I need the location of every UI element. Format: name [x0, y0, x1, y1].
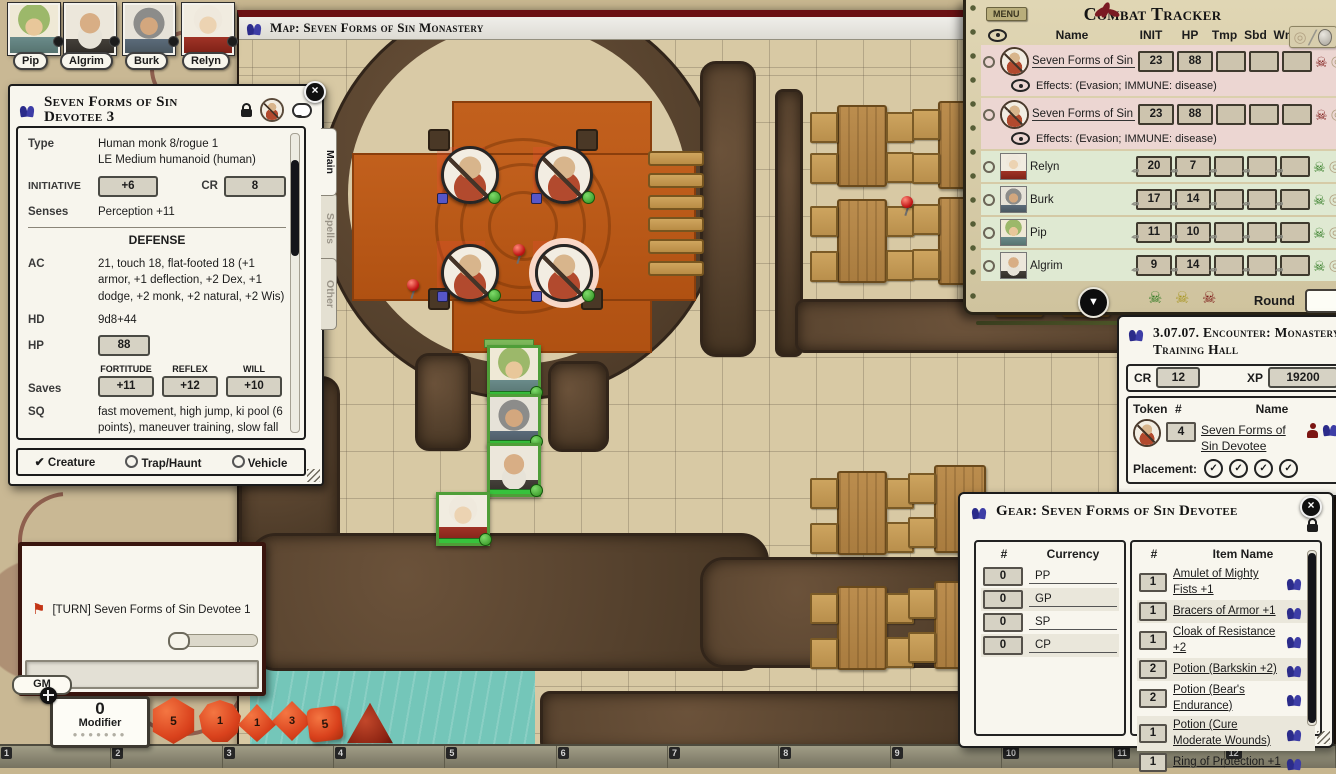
tracker-row-devotee-1[interactable]: Seven Forms of Sin Devote 23 88 ☠ ◎ ╱ Ef…: [981, 45, 1336, 96]
targeting-reticle-icon[interactable]: ◎: [1329, 258, 1336, 273]
bench: [810, 251, 838, 282]
modifier-label: Modifier: [53, 718, 147, 729]
item-link[interactable]: Potion (Bear's Endurance): [1173, 683, 1281, 714]
portrait-art: [10, 5, 58, 53]
portrait-label: Pip: [13, 52, 48, 70]
entry-type-selector: ✔ Creature Trap/Haunt Vehicle: [16, 448, 306, 476]
item-sheet-icon[interactable]: [1287, 576, 1303, 590]
resize-handle[interactable]: [307, 469, 320, 482]
bench: [810, 593, 838, 624]
hotkey-slot[interactable]: 3: [223, 746, 334, 768]
rack: [648, 239, 704, 254]
encounter-token-panel: Token # Name 4 Seven Forms of Sin Devote…: [1126, 396, 1336, 484]
field-label: Saves: [28, 381, 90, 397]
bench: [912, 153, 940, 184]
type-value: Human monk 8/rogue 1 LE Medium humanoid …: [98, 136, 286, 169]
col-qty: #: [981, 547, 1027, 561]
item-sheet-icon[interactable]: [1287, 692, 1303, 706]
hotkey-number: 2: [112, 747, 123, 759]
bench: [810, 153, 838, 184]
option-trap-haunt[interactable]: Trap/Haunt: [125, 455, 201, 470]
drag-grip[interactable]: [983, 109, 995, 121]
bench: [908, 517, 936, 548]
cr-box[interactable]: 12: [1156, 367, 1200, 388]
tmp-box[interactable]: [1216, 104, 1246, 125]
item-qty-box[interactable]: 2: [1139, 689, 1167, 708]
targeting-reticle-icon[interactable]: ◎: [1329, 225, 1336, 240]
tracker-row-algrim[interactable]: Algrim 9 14 ☠ ◎ ╱: [981, 250, 1336, 281]
portrait-pip[interactable]: [8, 3, 60, 55]
hotkey-slot[interactable]: 8: [779, 746, 890, 768]
combatant-name[interactable]: Pip: [1030, 227, 1133, 239]
bench: [908, 632, 936, 663]
option-creature[interactable]: ✔ Creature: [35, 455, 96, 469]
gear-title: Gear: Seven Forms of Sin Devotee: [996, 503, 1238, 520]
devotee-token-1[interactable]: [441, 146, 499, 204]
bench: [908, 588, 936, 619]
visibility-eye-icon[interactable]: [1011, 79, 1030, 92]
tracker-row-burk[interactable]: Burk 17 14 ☠ ◎ ╱: [981, 184, 1336, 215]
col-qty: #: [1175, 402, 1205, 416]
item-sheet-icon[interactable]: [1287, 663, 1303, 677]
chat-window: ⚑ [TURN] Seven Forms of Sin Devotee 1: [18, 542, 266, 696]
item-row: 1 Potion (Cure Moderate Wounds): [1137, 716, 1315, 751]
placement-check-icon[interactable]: ✓: [1254, 459, 1273, 478]
currency-amount-box[interactable]: 0: [983, 590, 1023, 609]
item-link[interactable]: Amulet of Mighty Fists +1: [1173, 567, 1281, 598]
item-sheet-icon[interactable]: [1287, 634, 1303, 648]
visibility-eye-icon[interactable]: [988, 29, 1007, 42]
effect-chip: [437, 193, 448, 204]
health-filter-red-icon[interactable]: ☠: [1202, 291, 1216, 307]
wnd-box[interactable]: [1280, 156, 1310, 177]
lock-icon[interactable]: [1307, 524, 1318, 532]
effects-line: Effects: (Evasion; IMMUNE: disease): [1011, 132, 1336, 145]
status-skull-icon[interactable]: ☠: [1315, 55, 1328, 69]
modifier-target-icon[interactable]: [40, 687, 57, 704]
defense-shield-icon: [1318, 29, 1332, 46]
window-icon: [1129, 327, 1145, 341]
table: [837, 105, 887, 187]
currency-panel: # Currency 0 PP 0 GP 0 SP 0 CP: [974, 540, 1126, 736]
token-portrait[interactable]: [1000, 153, 1027, 180]
will-box[interactable]: +10: [226, 376, 282, 397]
portrait-handle[interactable]: [227, 36, 238, 47]
placement-check-icon[interactable]: ✓: [1204, 459, 1223, 478]
hotkey-number: 6: [558, 747, 569, 759]
npc-sheet-window: Main Spells Other × Seven Forms of Sin D…: [8, 84, 324, 486]
placement-check-icon[interactable]: ✓: [1229, 459, 1248, 478]
cr-label: CR: [1134, 371, 1151, 385]
scrollbar-thumb[interactable]: [291, 160, 299, 256]
scrollbar-thumb[interactable]: [1308, 553, 1316, 723]
close-icon[interactable]: ×: [1300, 496, 1322, 518]
wnd-box[interactable]: [1280, 255, 1310, 276]
combatant-name[interactable]: Algrim: [1030, 260, 1133, 272]
effect-chip: [437, 291, 448, 302]
item-link[interactable]: Cloak of Resistance +2: [1173, 625, 1281, 656]
token-portrait[interactable]: [260, 98, 284, 122]
hotkey-slot[interactable]: 2: [111, 746, 222, 768]
map-pin[interactable]: [406, 279, 420, 300]
npc-link[interactable]: Seven Forms of Sin Devotee: [1201, 422, 1302, 454]
bench: [810, 478, 838, 509]
token-portrait[interactable]: [1000, 219, 1027, 246]
rack: [648, 217, 704, 232]
tracker-tools[interactable]: ◎ ╱: [1289, 26, 1336, 48]
portrait-art: [184, 5, 232, 53]
pc-token-pip[interactable]: [487, 345, 541, 399]
item-row: 1 Bracers of Armor +1: [1137, 600, 1315, 623]
effect-chip: [531, 193, 542, 204]
sheet-content: Type Human monk 8/rogue 1 LE Medium huma…: [16, 126, 306, 440]
col-currency: Currency: [1027, 547, 1119, 561]
currency-code[interactable]: CP: [1029, 639, 1117, 653]
item-sheet-icon[interactable]: [1287, 727, 1303, 741]
wnd-box[interactable]: [1280, 189, 1310, 210]
bench: [908, 473, 936, 504]
effects-line: Effects: (Evasion; IMMUNE: disease): [1011, 79, 1336, 92]
health-dot: [582, 191, 595, 204]
wnd-box[interactable]: [1282, 51, 1312, 72]
bench: [886, 250, 914, 281]
ac-value: 21, touch 18, flat-footed 18 (+1 armor, …: [98, 256, 286, 305]
hotkey-number: 3: [224, 747, 235, 759]
placement-label: Placement:: [1133, 462, 1197, 476]
hotkey-slot[interactable]: 6: [557, 746, 668, 768]
drag-grip[interactable]: [983, 260, 995, 272]
combatant-name[interactable]: Seven Forms of Sin Devote: [1032, 55, 1135, 68]
senses-value: Perception +11: [98, 204, 286, 220]
item-qty-box[interactable]: 1: [1139, 602, 1167, 621]
devotee-token-3[interactable]: [441, 244, 499, 302]
combatant-name[interactable]: Relyn: [1030, 161, 1133, 173]
check-icon: ✔: [35, 455, 45, 469]
bench: [912, 109, 940, 140]
modifier-value: 0: [53, 700, 147, 718]
item-row: 1 Cloak of Resistance +2: [1137, 623, 1315, 658]
cr-label: CR: [201, 178, 218, 194]
scrollbar[interactable]: [1307, 550, 1317, 726]
hotkey-slot[interactable]: 5: [445, 746, 556, 768]
token-portrait[interactable]: [1133, 419, 1161, 447]
portrait-handle[interactable]: [53, 36, 64, 47]
targeting-reticle-icon[interactable]: ◎: [1329, 159, 1336, 174]
gear-window: × Gear: Seven Forms of Sin Devotee # Cur…: [958, 492, 1334, 748]
status-skull-icon[interactable]: ☠: [1315, 108, 1328, 122]
item-qty-box[interactable]: 2: [1139, 660, 1167, 679]
currency-row: 0 SP: [981, 611, 1119, 634]
pillar: [428, 129, 450, 151]
targeting-reticle-icon[interactable]: ◎: [1331, 54, 1336, 69]
bench: [810, 206, 838, 237]
xp-label: XP: [1247, 371, 1263, 385]
option-vehicle[interactable]: Vehicle: [232, 455, 288, 470]
status-skull-icon[interactable]: ☠: [1313, 160, 1326, 174]
col-item-name: Item Name: [1171, 547, 1315, 561]
attack-sword-icon: ╱: [1309, 31, 1317, 44]
window-icon: [247, 21, 263, 35]
token-portrait[interactable]: [1000, 252, 1027, 279]
health-filter-green-icon[interactable]: ☠: [1148, 291, 1162, 307]
tab-spells[interactable]: Spells: [321, 192, 337, 264]
item-sheet-icon[interactable]: [1287, 605, 1303, 619]
rock-wall: [248, 533, 769, 671]
drag-grip[interactable]: [983, 161, 995, 173]
targeting-reticle-icon[interactable]: ◎: [1331, 107, 1336, 122]
targeting-reticle-icon[interactable]: ◎: [1329, 192, 1336, 207]
item-link[interactable]: Potion (Cure Moderate Wounds): [1173, 718, 1281, 749]
map-title: Map: Seven Forms of Sin Monastery: [270, 20, 484, 36]
radio-icon: [232, 455, 245, 468]
hotkey-slot[interactable]: 9: [891, 746, 1002, 768]
sheet-link-icon[interactable]: [1323, 422, 1336, 436]
currency-amount-box[interactable]: 0: [983, 567, 1023, 586]
modifier-dots: ●●●●●●●: [53, 732, 147, 738]
col-tmp: Tmp: [1209, 28, 1240, 42]
rack: [648, 261, 704, 276]
portrait-label: Algrim: [60, 52, 113, 70]
table: [837, 586, 887, 670]
health-dot: [530, 484, 543, 497]
tab-main[interactable]: Main: [321, 128, 337, 196]
portrait-art: [125, 5, 173, 53]
rock-wall: [548, 361, 609, 452]
tracker-row-devotee-2[interactable]: Seven Forms of Sin Devote 23 88 ☠ ◎ ╱ Ef…: [981, 98, 1336, 149]
item-qty-box[interactable]: 1: [1139, 753, 1167, 772]
turn-message: [TURN] Seven Forms of Sin Devotee 1: [52, 604, 250, 616]
currency-row: 0 PP: [981, 565, 1119, 588]
rack: [648, 195, 704, 210]
portrait-label: Relyn: [182, 52, 230, 70]
xp-box[interactable]: 19200: [1268, 367, 1336, 388]
hotkey-slot[interactable]: 4: [334, 746, 445, 768]
map-pin[interactable]: [512, 244, 526, 265]
field-label: AC: [28, 256, 90, 305]
hd-value: 9d8+44: [98, 312, 286, 328]
health-dot: [488, 289, 501, 302]
drag-grip[interactable]: [983, 56, 995, 68]
item-row: 2 Potion (Barkskin +2): [1137, 658, 1315, 681]
init-box[interactable]: 23: [1138, 51, 1174, 72]
close-icon[interactable]: ×: [304, 81, 326, 103]
faction-red-icon[interactable]: [1307, 423, 1318, 438]
health-filter-yellow-icon[interactable]: ☠: [1175, 291, 1189, 307]
bench: [810, 523, 838, 554]
health-dot: [488, 191, 501, 204]
table: [837, 471, 887, 555]
token-portrait[interactable]: [1000, 186, 1027, 213]
map-pin[interactable]: [900, 196, 914, 217]
gear-title-bar[interactable]: Gear: Seven Forms of Sin Devotee: [960, 494, 1332, 524]
table: [837, 199, 887, 283]
tab-other[interactable]: Other: [321, 258, 337, 330]
hp-box[interactable]: 88: [1177, 104, 1213, 125]
pc-token-relyn[interactable]: [436, 492, 490, 546]
portrait-relyn[interactable]: [182, 3, 234, 55]
col-name: Name: [1013, 28, 1131, 42]
effects-text: Effects: (Evasion; IMMUNE: disease): [1036, 133, 1217, 145]
item-row: 2 Potion (Bear's Endurance): [1137, 681, 1315, 716]
targeting-reticle-icon[interactable]: ◎: [1294, 30, 1307, 45]
portrait-handle[interactable]: [109, 36, 120, 47]
hotkey-slot[interactable]: 1: [0, 746, 111, 768]
visibility-eye-icon[interactable]: [1011, 132, 1030, 145]
currency-row: 0 CP: [981, 634, 1119, 657]
col-token: Token: [1133, 402, 1175, 416]
field-label: INITIATIVE: [28, 179, 90, 194]
reflex-box[interactable]: +12: [162, 376, 218, 397]
token-portrait[interactable]: [1000, 100, 1029, 129]
devotee-token-4-selected[interactable]: [535, 244, 593, 302]
status-skull-icon[interactable]: ☠: [1313, 259, 1326, 273]
tmp-box[interactable]: [1216, 51, 1246, 72]
field-label: HP: [28, 338, 90, 354]
sbd-box[interactable]: [1249, 104, 1279, 125]
item-qty-box[interactable]: 1: [1139, 724, 1167, 743]
vine-decoration: [967, 0, 980, 312]
sbd-box[interactable]: [1249, 51, 1279, 72]
devotee-token-2[interactable]: [535, 146, 593, 204]
modifier-box[interactable]: 0 Modifier ●●●●●●●: [50, 696, 150, 748]
health-dot: [582, 289, 595, 302]
round-field[interactable]: [1305, 289, 1336, 313]
placement-check-icon[interactable]: ✓: [1279, 459, 1298, 478]
hotkey-slot[interactable]: 7: [668, 746, 779, 768]
tracker-row-relyn[interactable]: Relyn 20 7 ☠ ◎ ╱: [981, 151, 1336, 182]
encounter-title-bar[interactable]: 3.07.07. Encounter: Monastery Training H…: [1119, 317, 1336, 363]
currency-amount-box[interactable]: 0: [983, 636, 1023, 655]
pillar: [576, 129, 598, 151]
item-link[interactable]: Ring of Protection +1: [1173, 755, 1281, 771]
field-label: SQ: [28, 404, 90, 440]
bench: [886, 112, 914, 143]
defense-header: DEFENSE: [28, 227, 286, 249]
hotkey-number: 10: [1003, 747, 1019, 759]
d6-die[interactable]: 5: [306, 705, 344, 743]
token-count-box[interactable]: 4: [1166, 422, 1196, 442]
item-link[interactable]: Potion (Barkskin +2): [1173, 662, 1281, 678]
status-skull-icon[interactable]: ☠: [1313, 193, 1326, 207]
item-row: 1 Amulet of Mighty Fists +1: [1137, 565, 1315, 600]
resize-handle[interactable]: [1317, 731, 1330, 744]
bench: [810, 112, 838, 143]
initiative-box[interactable]: +6: [98, 176, 158, 197]
rack: [648, 173, 704, 188]
col-init: INIT: [1131, 28, 1171, 42]
currency-code[interactable]: SP: [1029, 616, 1117, 630]
encounter-window: 3.07.07. Encounter: Monastery Training H…: [1117, 315, 1336, 497]
bench: [810, 638, 838, 669]
currency-code[interactable]: GP: [1029, 593, 1117, 607]
encounter-summary: CR 12 XP 19200: [1126, 364, 1336, 392]
tracker-header: Name INIT HP Tmp Sbd Wnd: [966, 25, 1336, 45]
hotkey-number: 7: [669, 747, 680, 759]
tracker-title: Combat Tracker: [966, 0, 1336, 25]
drag-grip[interactable]: [983, 227, 995, 239]
hp-box[interactable]: 88: [98, 335, 150, 356]
hotkey-number: 11: [1114, 747, 1130, 759]
pc-token-algrim[interactable]: [487, 443, 541, 497]
hotkey-number: 9: [892, 747, 903, 759]
hp-box[interactable]: 88: [1177, 51, 1213, 72]
plant-decoration: [1094, 2, 1120, 24]
field-label: Senses: [28, 204, 90, 220]
rack: [648, 151, 704, 166]
sq-value: fast movement, high jump, ki pool (6 poi…: [98, 404, 286, 440]
currency-amount-box[interactable]: 0: [983, 613, 1023, 632]
field-label: Type: [28, 136, 90, 169]
portrait-handle[interactable]: [168, 36, 179, 47]
scrollbar[interactable]: [290, 133, 300, 433]
round-label: Round: [1254, 293, 1295, 308]
combatant-name[interactable]: Seven Forms of Sin Devote: [1032, 108, 1135, 121]
hotkey-number: 8: [780, 747, 791, 759]
item-qty-box[interactable]: 1: [1139, 631, 1167, 650]
hotkey-number: 4: [335, 747, 346, 759]
rock-wall: [700, 61, 756, 357]
col-name: Name: [1205, 402, 1336, 416]
portrait-label: Burk: [125, 52, 168, 70]
currency-code[interactable]: PP: [1029, 570, 1117, 584]
health-dot: [479, 533, 492, 546]
status-skull-icon[interactable]: ☠: [1313, 226, 1326, 240]
hotkey-slot[interactable]: 10: [1002, 746, 1113, 768]
portrait-algrim[interactable]: [64, 3, 116, 55]
tracker-row-pip[interactable]: Pip 11 10 ☠ ◎ ╱: [981, 217, 1336, 248]
encounter-title: 3.07.07. Encounter: Monastery Training H…: [1153, 325, 1336, 359]
rock-wall: [540, 691, 1026, 752]
turn-flag-icon: ⚑: [32, 602, 45, 617]
window-icon: [20, 103, 36, 117]
window-icon: [972, 505, 988, 519]
rock-wall: [415, 353, 471, 451]
chat-mode-slider[interactable]: [170, 634, 258, 647]
next-actor-button[interactable]: ▼: [1078, 287, 1109, 318]
fortitude-box[interactable]: +11: [98, 376, 154, 397]
portrait-art: [66, 5, 114, 53]
radio-icon: [125, 455, 138, 468]
chat-message: ⚑ [TURN] Seven Forms of Sin Devotee 1: [32, 602, 251, 617]
portrait-burk[interactable]: [123, 3, 175, 55]
drag-grip[interactable]: [983, 194, 995, 206]
sheet-title: Seven Forms of Sin Devotee 3: [44, 95, 233, 125]
item-link[interactable]: Bracers of Armor +1: [1173, 604, 1281, 620]
combatant-name[interactable]: Burk: [1030, 194, 1133, 206]
lock-icon[interactable]: [241, 109, 252, 117]
bench: [886, 152, 914, 183]
wnd-box[interactable]: [1280, 222, 1310, 243]
hotkey-number: 5: [446, 747, 457, 759]
currency-row: 0 GP: [981, 588, 1119, 611]
sheet-title-bar[interactable]: Seven Forms of Sin Devotee 3: [10, 86, 322, 127]
combat-tracker: MENU Combat Tracker Name INIT HP Tmp Sbd…: [963, 0, 1336, 315]
chat-bubble-handle[interactable]: [168, 632, 190, 650]
token-portrait[interactable]: [1000, 47, 1029, 76]
item-row: 1 Ring of Protection +1: [1137, 751, 1315, 774]
init-box[interactable]: 23: [1138, 104, 1174, 125]
bench: [912, 204, 940, 235]
pc-token-burk[interactable]: [487, 394, 541, 448]
item-qty-box[interactable]: 1: [1139, 573, 1167, 592]
cr-box[interactable]: 8: [224, 176, 286, 197]
chat-bubble-icon[interactable]: [292, 103, 312, 118]
col-qty: #: [1137, 547, 1171, 561]
bench: [912, 249, 940, 280]
col-hp: HP: [1171, 28, 1209, 42]
effects-text: Effects: (Evasion; IMMUNE: disease): [1036, 80, 1217, 92]
wnd-box[interactable]: [1282, 104, 1312, 125]
